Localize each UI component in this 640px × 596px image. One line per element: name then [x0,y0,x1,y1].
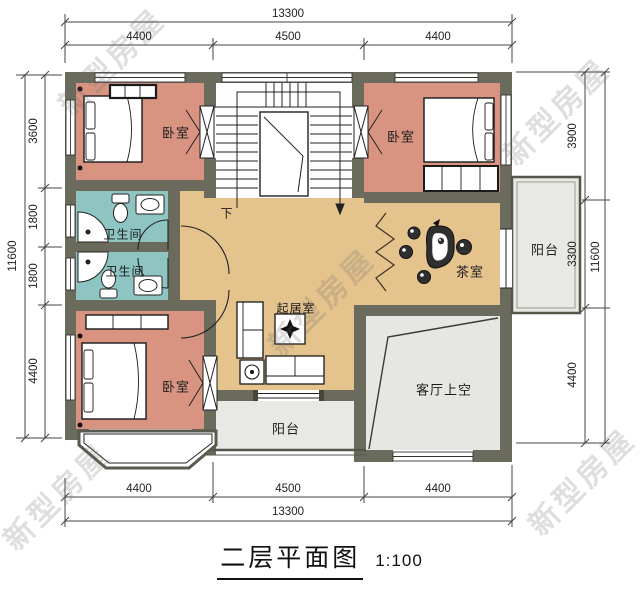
dim-bottom-seg-1: 4500 [275,483,301,495]
drawing-scale: 1:100 [375,551,423,571]
room-label-balcony-right: 阳台 [531,240,559,259]
drawing-title-text: 二层平面图 [217,538,363,580]
stair-down-label: 下 [220,205,233,222]
balcony-bottom-rail [204,450,366,455]
dim-top-seg-0: 4400 [126,31,152,43]
dim-right-seg-1: 3300 [567,241,579,267]
dim-left-seg-1: 1800 [28,204,40,230]
dim-left-seg-2: 1800 [28,263,40,289]
dim-left-seg-3: 4400 [28,358,40,384]
toilet-icon [112,194,129,203]
dim-right-seg-0: 3900 [567,123,579,149]
dim-top-total: 13300 [272,8,304,20]
floor-plan: 新型房屋 新型房屋 新型房屋 新型房屋 新型房屋 卧室 卧室 卧室 卫生间 卫生… [0,0,640,596]
wardrobe-icon [110,85,156,98]
stool-icon [457,240,472,255]
dim-bottom-seg-0: 4400 [126,483,152,495]
room-label-bedroom-bl: 卧室 [162,377,190,396]
room-label-bedroom-tr: 卧室 [387,127,415,146]
room-label-void: 客厅上空 [416,380,472,399]
room-label-bathroom-lower: 卫生间 [105,263,144,280]
room-label-bedroom-tl: 卧室 [162,123,190,142]
room-label-balcony-bottom: 阳台 [272,419,300,438]
dim-bottom-total: 13300 [272,506,304,518]
stool-icon [418,271,431,284]
dim-bottom-seg-2: 4400 [425,483,451,495]
bed-icon [424,98,494,162]
dim-left-seg-0: 3600 [28,118,40,144]
dim-right-total: 11600 [590,241,602,272]
room-label-living-room: 起居室 [276,300,315,317]
toilet-icon [100,289,117,298]
dim-right-seg-2: 4400 [567,362,579,388]
cabinet-icon [86,315,168,329]
room-label-tea-room: 茶室 [456,262,484,281]
dim-top-seg-1: 4500 [275,31,301,43]
teapot-icon [438,238,444,244]
drawing-title: 二层平面图 1:100 [0,538,640,580]
room-label-bathroom-upper: 卫生间 [103,226,142,243]
dim-top-seg-2: 4400 [425,31,451,43]
dim-left-total: 11600 [7,240,19,271]
stool-icon [408,227,420,239]
stool-icon [400,246,413,259]
